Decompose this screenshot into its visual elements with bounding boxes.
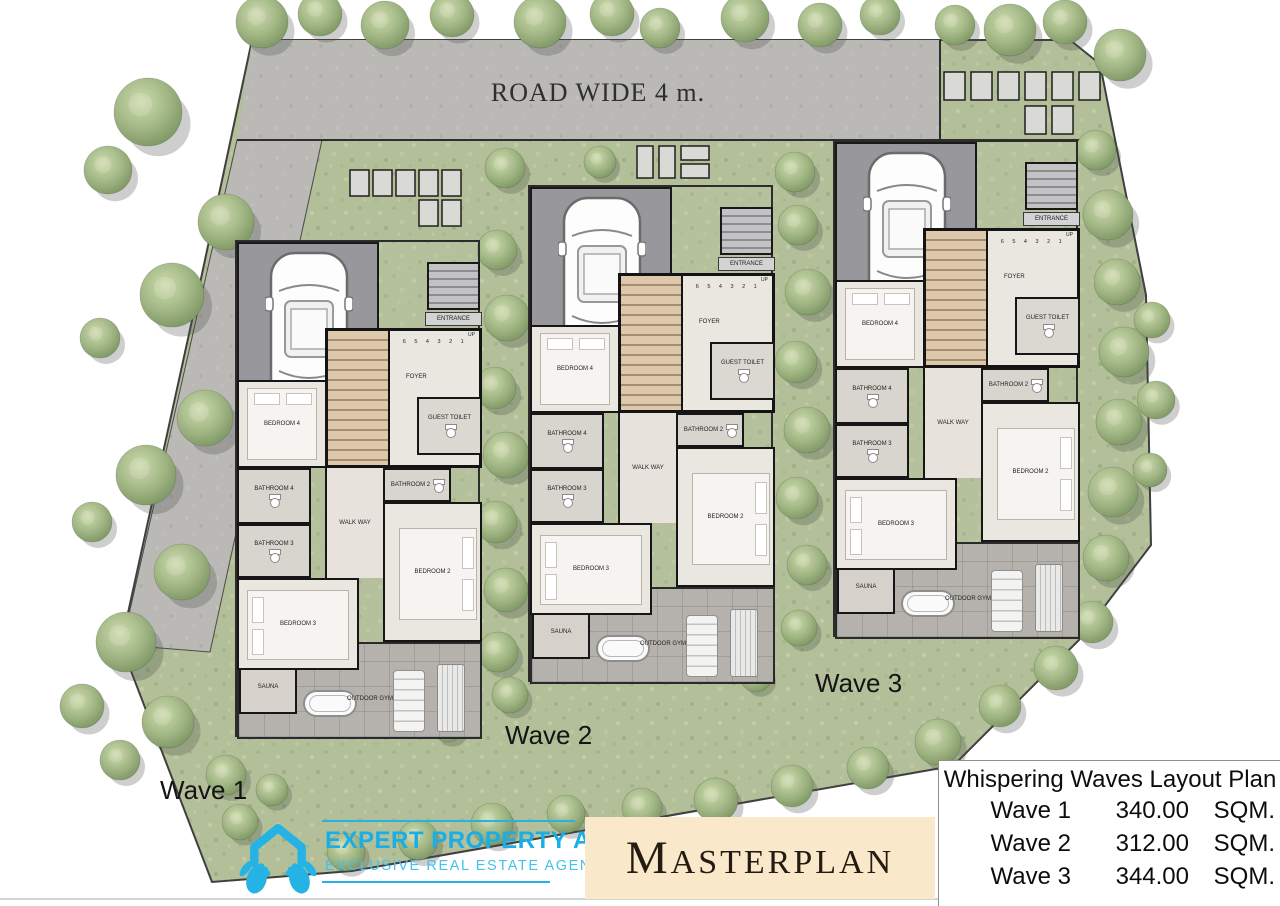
- toilet-icon: [1031, 379, 1041, 392]
- legend-wave-area: 312.00: [1077, 827, 1195, 860]
- tree-icon: [114, 78, 191, 156]
- foyer-label: FOYER: [1004, 274, 1025, 280]
- lounge-chair-icon: [393, 670, 425, 732]
- room-bedroom3: BEDROOM 3: [530, 523, 652, 615]
- room-bedroom3: BEDROOM 3: [835, 478, 957, 570]
- gym-equipment-icon: [730, 609, 758, 677]
- up-label: UP: [761, 277, 768, 283]
- sauna-label: SAUNA: [258, 684, 279, 690]
- toilet-icon: [269, 549, 279, 562]
- bedroom4-label: BEDROOM 4: [557, 366, 593, 372]
- toilet-icon: [867, 449, 877, 462]
- toilet-icon: [1043, 324, 1053, 337]
- foyer-label: FOYER: [699, 319, 720, 325]
- masterplan-canvas: ROAD WIDE 4 m. SAUNA OUTDOOR GYM: [0, 0, 1280, 906]
- brand-name: EXPERT PROPERTY ASIA: [325, 827, 585, 855]
- up-label: UP: [1066, 232, 1073, 238]
- bathroom2-label: BATHROOM 2: [989, 382, 1028, 388]
- room-walkway: WALK WAY: [325, 468, 385, 578]
- room-bathroom4: BATHROOM 4: [237, 468, 311, 524]
- tree-icon: [84, 146, 138, 201]
- bathroom3-label: BATHROOM 3: [254, 541, 293, 547]
- masterplan-title: MASTERPLAN: [626, 831, 894, 885]
- legend-wave-unit: SQM.: [1195, 827, 1280, 860]
- bathroom4-label: BATHROOM 4: [254, 486, 293, 492]
- room-bathroom3: BATHROOM 3: [835, 424, 909, 478]
- toilet-icon: [562, 439, 572, 452]
- room-bathroom2: BATHROOM 2: [676, 413, 744, 447]
- bathtub-icon: [596, 635, 650, 662]
- entrance-steps: [720, 207, 773, 255]
- room-bathroom3: BATHROOM 3: [237, 524, 311, 578]
- brand-rule-top: [322, 820, 575, 822]
- entrance-label: ENTRANCE: [425, 312, 482, 326]
- bathroom4-label: BATHROOM 4: [547, 431, 586, 437]
- guest-toilet-label: GUEST TOILET: [721, 360, 764, 366]
- brand-tagline: EXCLUSIVE REAL ESTATE AGENCY: [325, 858, 595, 874]
- outdoor-gym-label: OUTDOOR GYM: [640, 641, 686, 647]
- house-plan-wave-1: SAUNA OUTDOOR GYM: [235, 240, 480, 737]
- up-label: UP: [468, 332, 475, 338]
- bedroom4-label: BEDROOM 4: [862, 321, 898, 327]
- room-bedroom3: BEDROOM 3: [237, 578, 359, 670]
- entrance-label: ENTRANCE: [1023, 212, 1080, 226]
- masterplan-title-box: MASTERPLAN: [585, 817, 935, 899]
- house-plan-wave-3: SAUNA OUTDOOR GYM: [833, 140, 1078, 637]
- staircase: [621, 276, 683, 410]
- sauna-label: SAUNA: [856, 584, 877, 590]
- legend-row: Wave 1 340.00 SQM.: [939, 794, 1280, 827]
- tree-icon: [100, 740, 145, 786]
- room-bedroom4: BEDROOM 4: [237, 380, 327, 468]
- tree-icon: [430, 0, 480, 44]
- bathroom4-label: BATHROOM 4: [852, 386, 891, 392]
- house-plan-wave-2: SAUNA OUTDOOR GYM: [528, 185, 773, 682]
- toilet-icon: [433, 479, 443, 492]
- entrance-steps: [1025, 162, 1078, 210]
- legend-wave-name: Wave 1: [971, 794, 1077, 827]
- lounge-chair-icon: [686, 615, 718, 677]
- bathroom3-label: BATHROOM 3: [547, 486, 586, 492]
- legend-row: Wave 2 312.00 SQM.: [939, 827, 1280, 860]
- bedroom2-label: BEDROOM 2: [414, 569, 450, 575]
- tree-icon: [72, 502, 117, 548]
- toilet-icon: [867, 394, 877, 407]
- room-walkway: WALK WAY: [923, 368, 983, 478]
- outdoor-gym-label: OUTDOOR GYM: [945, 596, 991, 602]
- tree-icon: [860, 0, 905, 41]
- room-bedroom4: BEDROOM 4: [835, 280, 925, 368]
- legend-wave-name: Wave 3: [971, 860, 1077, 893]
- foyer-label: FOYER: [406, 374, 427, 380]
- room-bedroom2: BEDROOM 2: [981, 402, 1080, 542]
- bathroom2-label: BATHROOM 2: [391, 482, 430, 488]
- wave1-label: Wave 1: [160, 775, 247, 806]
- room-bathroom4: BATHROOM 4: [530, 413, 604, 469]
- room-bathroom4: BATHROOM 4: [835, 368, 909, 424]
- legend-wave-unit: SQM.: [1195, 794, 1280, 827]
- lounge-chair-icon: [991, 570, 1023, 632]
- guest-toilet-label: GUEST TOILET: [428, 415, 471, 421]
- room-bedroom2: BEDROOM 2: [676, 447, 775, 587]
- room-bedroom4: BEDROOM 4: [530, 325, 620, 413]
- sauna-label: SAUNA: [551, 629, 572, 635]
- walkway-label: WALK WAY: [937, 420, 968, 426]
- bathtub-icon: [901, 590, 955, 617]
- bedroom3-label: BEDROOM 3: [878, 521, 914, 527]
- tree-icon: [1034, 646, 1084, 697]
- legend-wave-area: 344.00: [1077, 860, 1195, 893]
- tree-icon: [590, 0, 639, 43]
- bedroom2-label: BEDROOM 2: [1012, 469, 1048, 475]
- room-bedroom2: BEDROOM 2: [383, 502, 482, 642]
- toilet-icon: [269, 494, 279, 507]
- bedroom4-label: BEDROOM 4: [264, 421, 300, 427]
- brand-logo-hands-house-icon: [236, 818, 320, 904]
- staircase: [328, 331, 390, 465]
- tree-icon: [60, 684, 110, 735]
- legend-row: Wave 3 344.00 SQM.: [939, 860, 1280, 893]
- tree-icon: [236, 0, 295, 56]
- staircase: [926, 231, 988, 365]
- stair-numbers: 6 5 4 3 2 1: [988, 239, 1078, 245]
- legend-title: Whispering Waves Layout Plan: [939, 766, 1280, 794]
- entrance-steps: [427, 262, 480, 310]
- gym-equipment-icon: [437, 664, 465, 732]
- legend-wave-area: 340.00: [1077, 794, 1195, 827]
- bedroom2-label: BEDROOM 2: [707, 514, 743, 520]
- room-guest-toilet: GUEST TOILET: [1015, 297, 1080, 355]
- stair-numbers: 6 5 4 3 2 1: [683, 284, 773, 290]
- walkway-label: WALK WAY: [339, 520, 370, 526]
- wave3-label: Wave 3: [815, 668, 902, 699]
- bathroom3-label: BATHROOM 3: [852, 441, 891, 447]
- room-bathroom2: BATHROOM 2: [981, 368, 1049, 402]
- room-guest-toilet: GUEST TOILET: [417, 397, 482, 455]
- guest-toilet-label: GUEST TOILET: [1026, 315, 1069, 321]
- toilet-icon: [738, 369, 748, 382]
- wave2-label: Wave 2: [505, 720, 592, 751]
- bathtub-icon: [303, 690, 357, 717]
- road-width-label: ROAD WIDE 4 m.: [448, 78, 748, 108]
- room-guest-toilet: GUEST TOILET: [710, 342, 775, 400]
- room-bathroom2: BATHROOM 2: [383, 468, 451, 502]
- bathroom2-label: BATHROOM 2: [684, 427, 723, 433]
- room-bathroom3: BATHROOM 3: [530, 469, 604, 523]
- gym-equipment-icon: [1035, 564, 1063, 632]
- area-legend: Whispering Waves Layout Plan Wave 1 340.…: [938, 760, 1280, 906]
- toilet-icon: [445, 424, 455, 437]
- tree-icon: [298, 0, 348, 43]
- brand-rule-bottom: [322, 881, 550, 883]
- tree-icon: [80, 318, 125, 364]
- room-walkway: WALK WAY: [618, 413, 678, 523]
- walkway-label: WALK WAY: [632, 465, 663, 471]
- legend-wave-unit: SQM.: [1195, 860, 1280, 893]
- stair-numbers: 6 5 4 3 2 1: [390, 339, 480, 345]
- bedroom3-label: BEDROOM 3: [280, 621, 316, 627]
- legend-wave-name: Wave 2: [971, 827, 1077, 860]
- outdoor-gym-label: OUTDOOR GYM: [347, 696, 393, 702]
- entrance-label: ENTRANCE: [718, 257, 775, 271]
- toilet-icon: [726, 424, 736, 437]
- toilet-icon: [562, 494, 572, 507]
- bedroom3-label: BEDROOM 3: [573, 566, 609, 572]
